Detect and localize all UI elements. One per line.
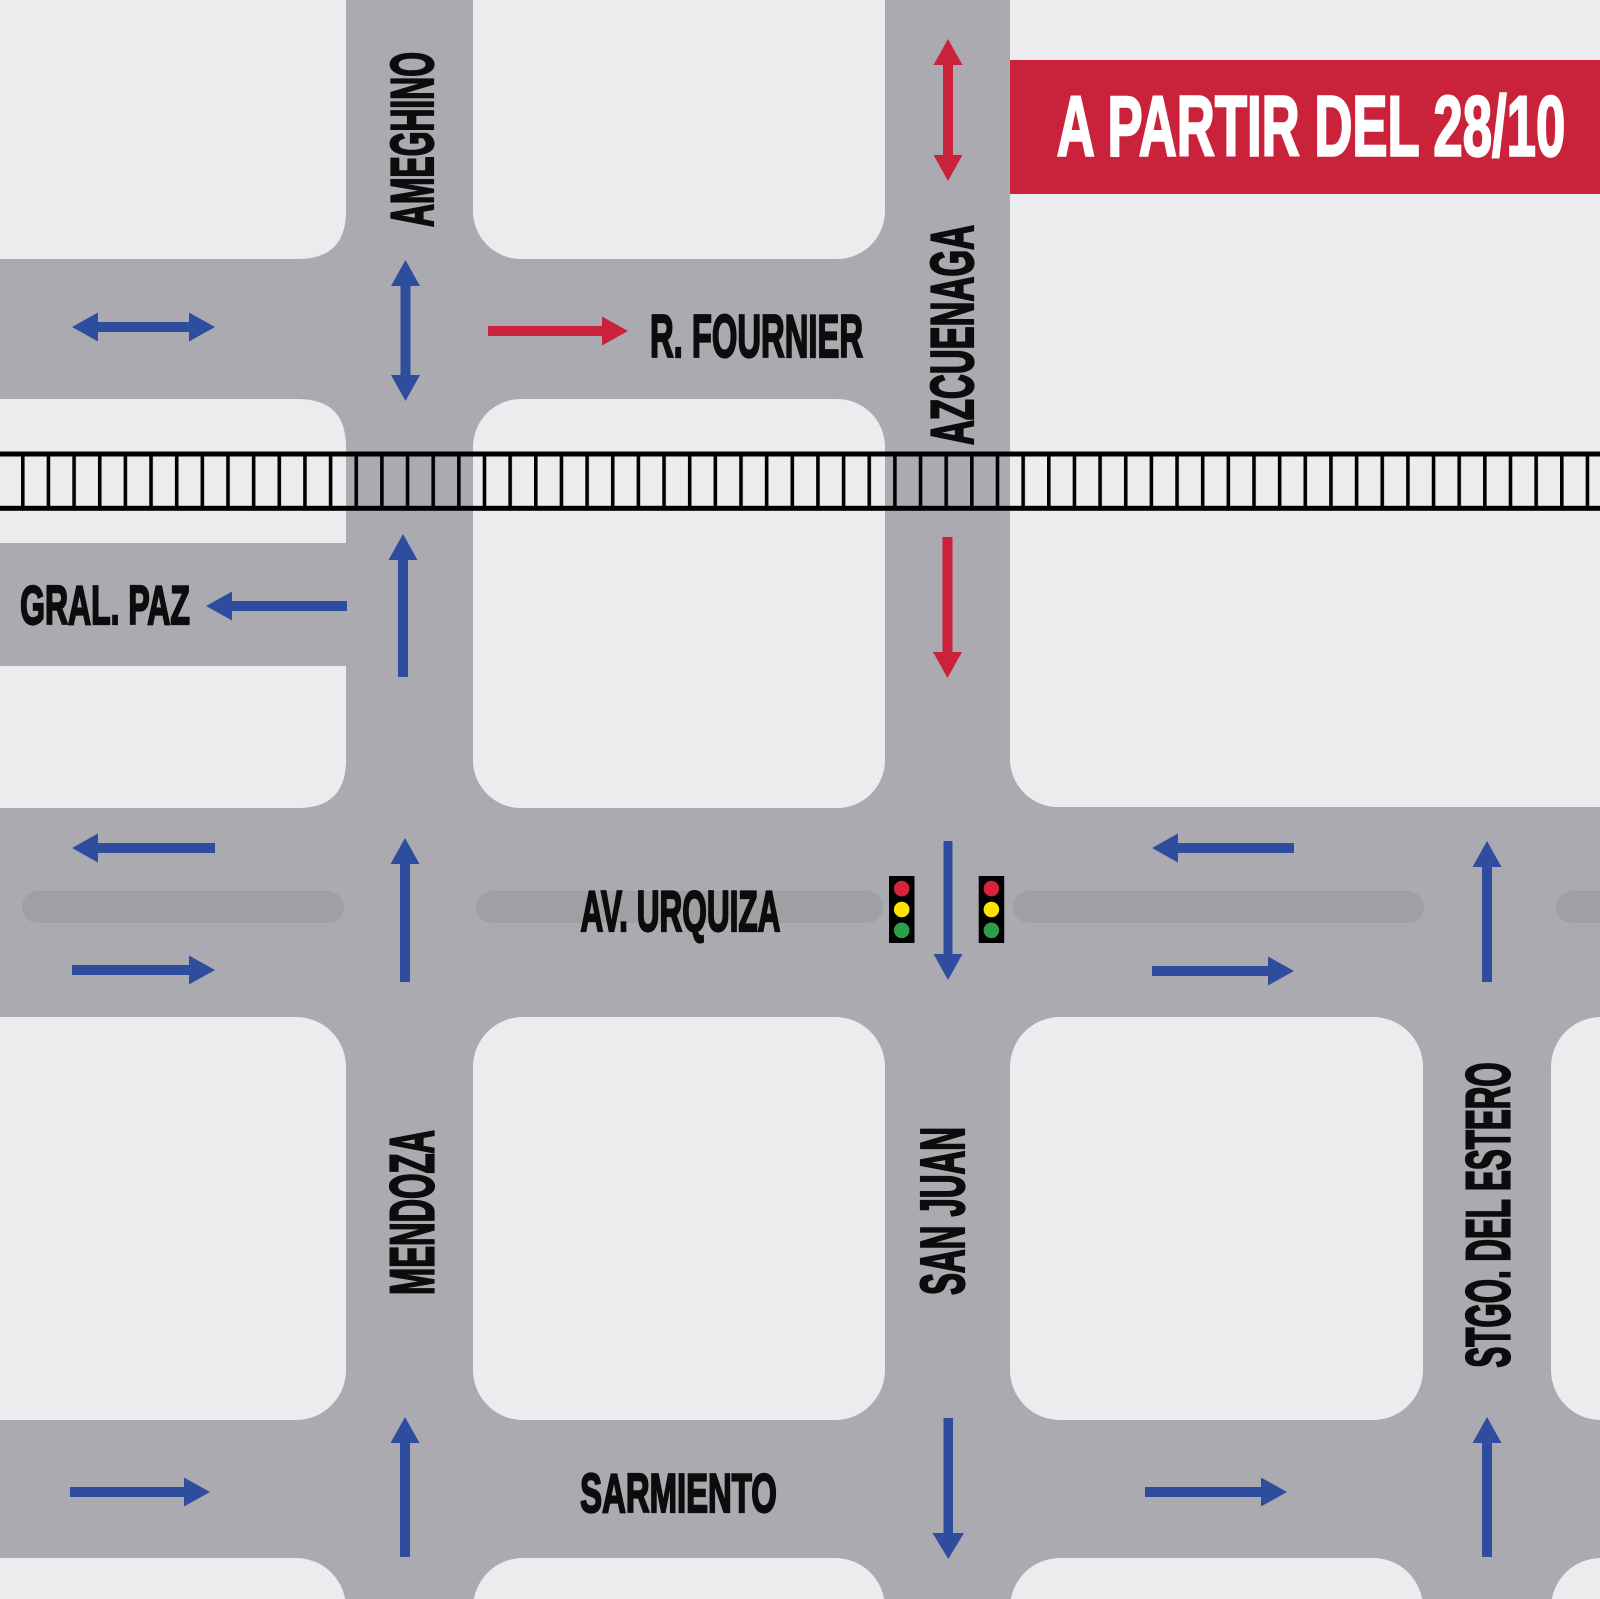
svg-text:MENDOZA: MENDOZA [378, 1130, 447, 1295]
svg-text:STGO. DEL ESTERO: STGO. DEL ESTERO [1455, 1062, 1523, 1367]
svg-text:SARMIENTO: SARMIENTO [580, 1462, 777, 1524]
svg-text:A PARTIR DEL 28/10: A PARTIR DEL 28/10 [1057, 79, 1565, 174]
svg-text:AMEGHINO: AMEGHINO [379, 52, 447, 227]
svg-text:GRAL. PAZ: GRAL. PAZ [20, 574, 190, 636]
svg-text:AV. URQUIZA: AV. URQUIZA [581, 879, 781, 943]
svg-text:SAN JUAN: SAN JUAN [909, 1127, 978, 1295]
svg-text:AZCUENAGA: AZCUENAGA [919, 225, 987, 445]
svg-text:R. FOURNIER: R. FOURNIER [650, 304, 863, 371]
